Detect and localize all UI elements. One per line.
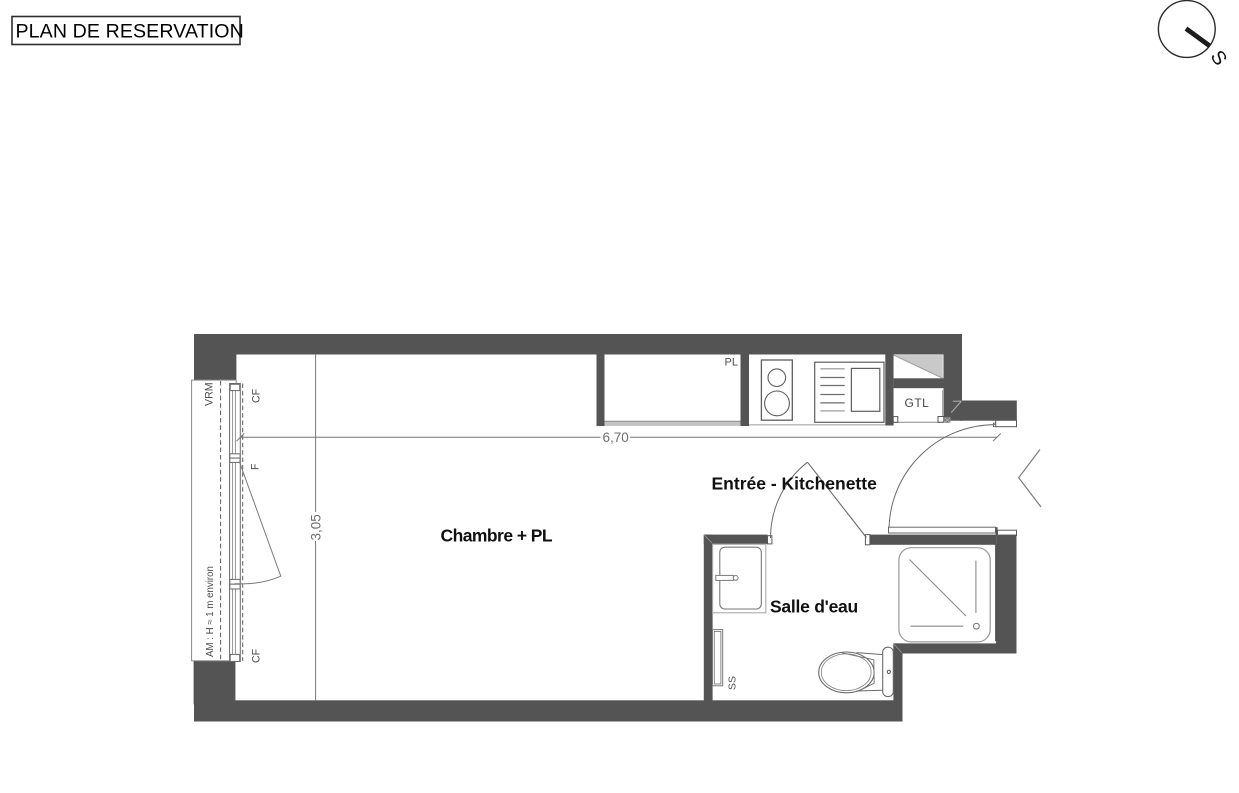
- svg-text:S: S: [1206, 46, 1232, 69]
- svg-text:SS: SS: [727, 676, 739, 690]
- svg-text:PLAN DE RESERVATION: PLAN DE RESERVATION: [16, 21, 244, 43]
- svg-text:Salle d'eau: Salle d'eau: [770, 597, 858, 617]
- svg-text:AM : H ≈ 1 m environ: AM : H ≈ 1 m environ: [205, 566, 216, 657]
- svg-text:F: F: [250, 463, 262, 470]
- svg-text:GTL: GTL: [905, 396, 930, 410]
- svg-text:6,70: 6,70: [603, 430, 629, 445]
- svg-text:VRM: VRM: [204, 382, 216, 406]
- svg-text:CF: CF: [251, 648, 263, 663]
- svg-text:CF: CF: [251, 388, 263, 403]
- svg-text:PL: PL: [725, 357, 738, 369]
- svg-text:Chambre + PL: Chambre + PL: [441, 526, 553, 546]
- svg-text:Entrée - Kitchenette: Entrée - Kitchenette: [712, 474, 878, 494]
- svg-text:3,05: 3,05: [308, 514, 323, 540]
